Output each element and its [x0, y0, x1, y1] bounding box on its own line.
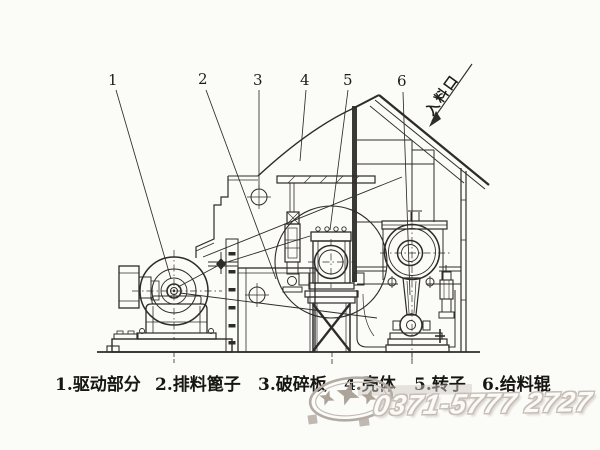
watermark-phone-number: 0371-5777 2727	[371, 386, 595, 422]
legend-item-1: 1.驱动部分	[55, 370, 141, 395]
housing-shell	[228, 95, 489, 352]
callout-number-6: 6	[397, 72, 407, 90]
callout-number-2: 2	[198, 70, 208, 88]
callout-number-3: 3	[253, 71, 263, 89]
ground-line	[97, 346, 480, 365]
legend-item-2: 2.排料篦子	[155, 370, 241, 395]
callout-number-4: 4	[300, 71, 310, 89]
drive-unit	[112, 250, 232, 352]
callout-number-5: 5	[343, 71, 353, 89]
legend-item-3: 3.破碎板	[258, 370, 327, 395]
diagram-page: { "figure": { "callout_numbers": ["1", "…	[0, 0, 600, 450]
leader-lines	[116, 90, 410, 295]
callout-number-1: 1	[108, 71, 118, 89]
rotor-bearing-assembly	[277, 176, 375, 352]
